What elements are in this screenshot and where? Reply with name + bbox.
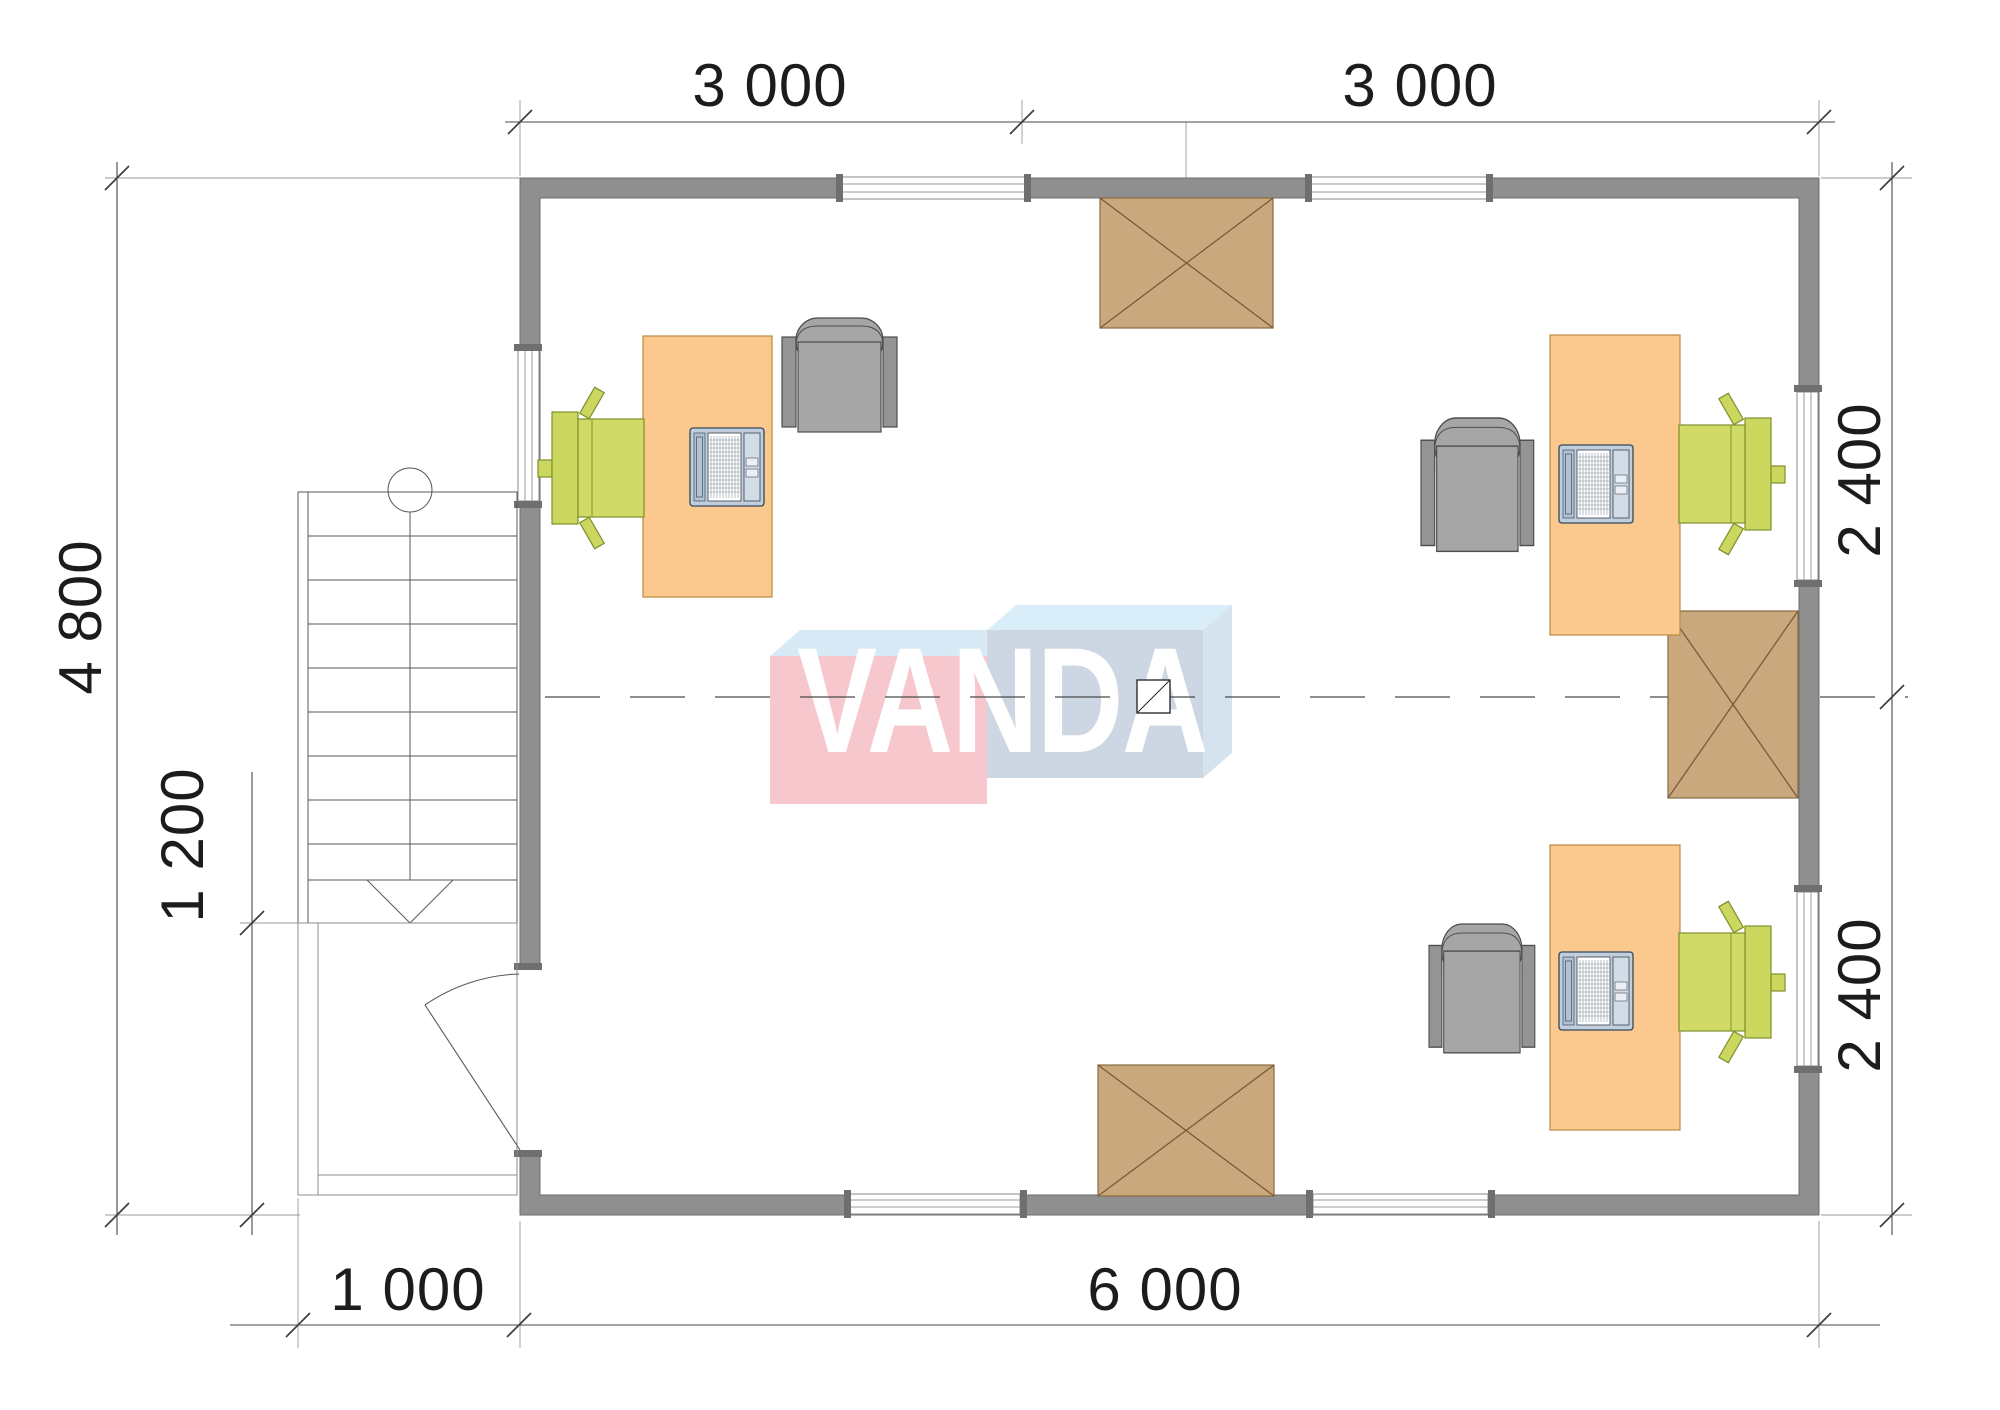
stair-treads: [308, 536, 517, 880]
workstation-3: [1429, 845, 1785, 1130]
laptop: [1559, 445, 1633, 523]
workstation-1: [538, 318, 897, 597]
dim-right-upper: 2 400: [1826, 402, 1893, 557]
stair-direction-arrow: [367, 880, 453, 923]
dim-bottom-porch: 1 000: [330, 1256, 485, 1323]
dim-right-lower: 2 400: [1826, 917, 1893, 1072]
dim-top-left: 3 000: [692, 52, 847, 119]
door-swing-arc: [425, 974, 519, 1005]
door-leaf: [425, 1005, 520, 1150]
roof-hatch-right: [1668, 611, 1798, 798]
stair-direction-circle: [388, 468, 432, 512]
task-chair: [538, 387, 644, 548]
floor-plan-canvas: VANDA: [0, 0, 2000, 1410]
office-chair: [1421, 418, 1534, 551]
window-bottom-right: [1313, 1194, 1488, 1214]
entry-door: [425, 974, 520, 1150]
dim-bottom-main: 6 000: [1087, 1256, 1242, 1323]
workstation-2: [1421, 335, 1785, 635]
office-chair: [782, 318, 897, 432]
task-chair: [1679, 393, 1785, 554]
laptop: [1559, 952, 1633, 1030]
task-chair: [1679, 901, 1785, 1062]
roof-hatch-bottom: [1098, 1065, 1274, 1196]
window-left: [518, 348, 539, 501]
staircase: [298, 468, 517, 923]
dim-left: 4 800: [47, 539, 114, 694]
window-right-lower: [1797, 892, 1818, 1066]
window-top-right: [1310, 177, 1488, 199]
laptop: [690, 428, 764, 506]
dim-left-porch: 1 200: [149, 767, 216, 922]
roof-hatch-top: [1100, 198, 1273, 328]
door-opening: [517, 970, 541, 1150]
dim-top-right: 3 000: [1342, 52, 1497, 119]
porch: [298, 923, 517, 1195]
window-top-left: [841, 177, 1026, 199]
floor-plan-drawing: VANDA: [0, 0, 2000, 1410]
office-chair: [1429, 924, 1535, 1053]
window-right-upper: [1797, 392, 1818, 580]
window-bottom-left: [848, 1194, 1020, 1214]
